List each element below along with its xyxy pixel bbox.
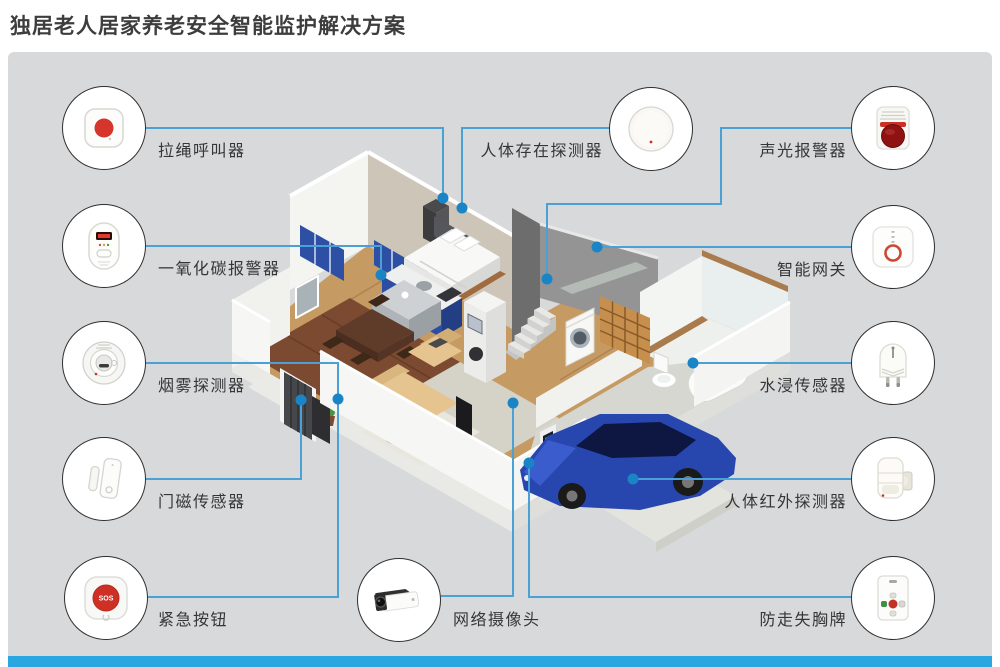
device-smart-gateway — [851, 205, 935, 289]
device-pull-cord-caller — [62, 86, 146, 170]
pull-cord-caller-icon — [72, 96, 136, 160]
device-label-pull-cord-caller: 拉绳呼叫器 — [158, 137, 246, 161]
page-title: 独居老人居家养老安全智能监护解决方案 — [10, 10, 406, 40]
pir-detector-icon — [861, 447, 925, 511]
presence-detector-icon — [619, 97, 683, 161]
device-label-presence-detector: 人体存在探测器 — [480, 137, 603, 161]
infographic-poster: 独居老人居家养老安全智能监护解决方案 — [0, 0, 1000, 667]
device-ip-camera — [357, 558, 441, 642]
device-door-sensor — [62, 437, 146, 521]
ip-camera-icon — [366, 567, 432, 633]
device-water-leak-sensor — [851, 321, 935, 405]
device-label-smart-gateway: 智能网关 — [777, 256, 847, 280]
smoke-detector-icon — [72, 331, 136, 395]
device-label-water-leak-sensor: 水浸传感器 — [759, 372, 847, 396]
emergency-button-icon: SOS — [74, 566, 138, 630]
device-label-ip-camera: 网络摄像头 — [453, 606, 541, 630]
co-alarm-icon — [72, 214, 136, 278]
device-emergency-button: SOS — [64, 556, 148, 640]
door-sensor-icon — [72, 447, 136, 511]
device-label-pir-detector: 人体红外探测器 — [724, 488, 847, 512]
water-leak-sensor-icon — [861, 331, 925, 395]
device-presence-detector — [609, 87, 693, 171]
device-label-co-alarm: 一氧化碳报警器 — [158, 255, 281, 279]
device-pir-detector — [851, 437, 935, 521]
smart-gateway-icon — [861, 215, 925, 279]
svg-text:SOS: SOS — [99, 596, 114, 603]
sound-light-alarm-icon — [861, 96, 925, 160]
device-label-smoke-detector: 烟雾探测器 — [158, 372, 246, 396]
footer-accent-bar — [8, 656, 992, 667]
device-sound-light-alarm — [851, 86, 935, 170]
anti-loss-badge-icon — [861, 566, 925, 630]
device-label-anti-loss-badge: 防走失胸牌 — [759, 606, 847, 630]
device-smoke-detector — [62, 321, 146, 405]
device-co-alarm — [62, 204, 146, 288]
device-label-sound-light-alarm: 声光报警器 — [759, 137, 847, 161]
device-label-door-sensor: 门磁传感器 — [158, 488, 246, 512]
device-anti-loss-badge — [851, 556, 935, 640]
device-label-emergency-button: 紧急按钮 — [158, 606, 228, 630]
